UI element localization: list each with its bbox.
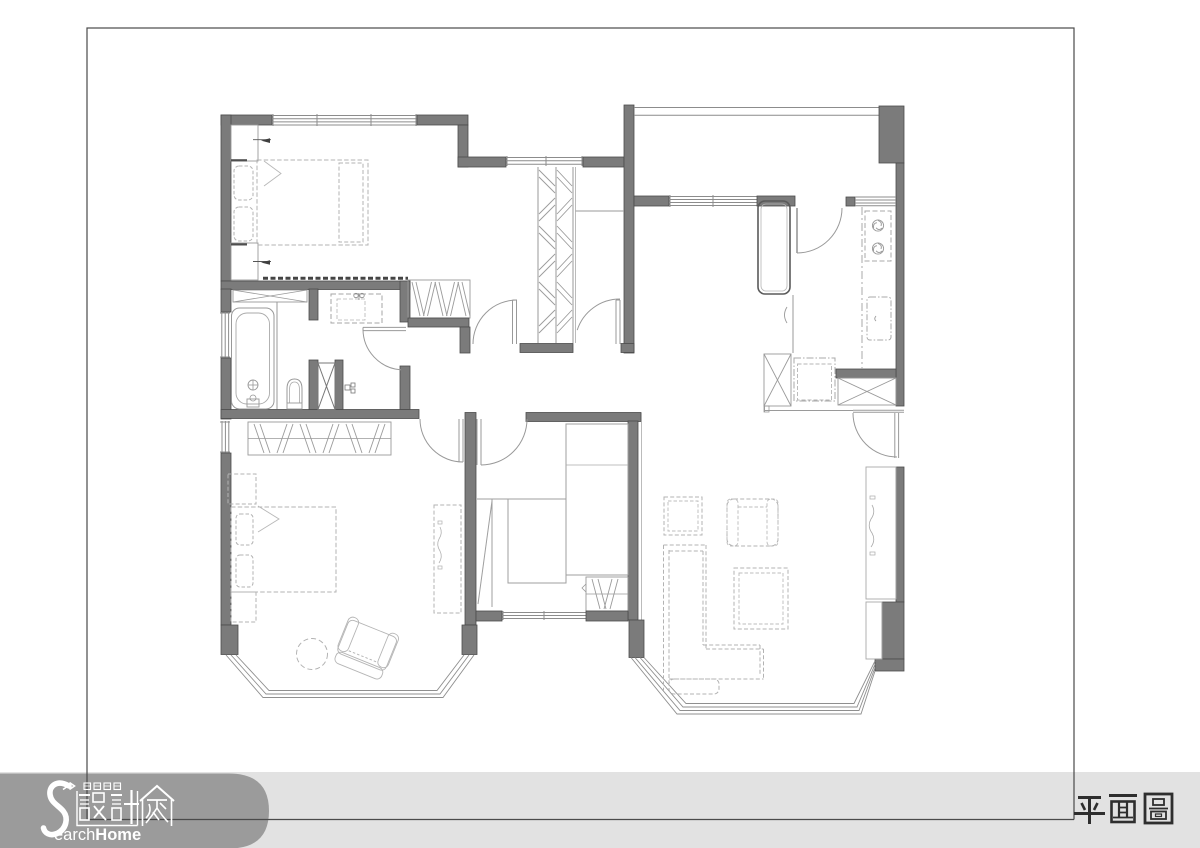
svg-text:earchHome: earchHome — [54, 826, 141, 844]
